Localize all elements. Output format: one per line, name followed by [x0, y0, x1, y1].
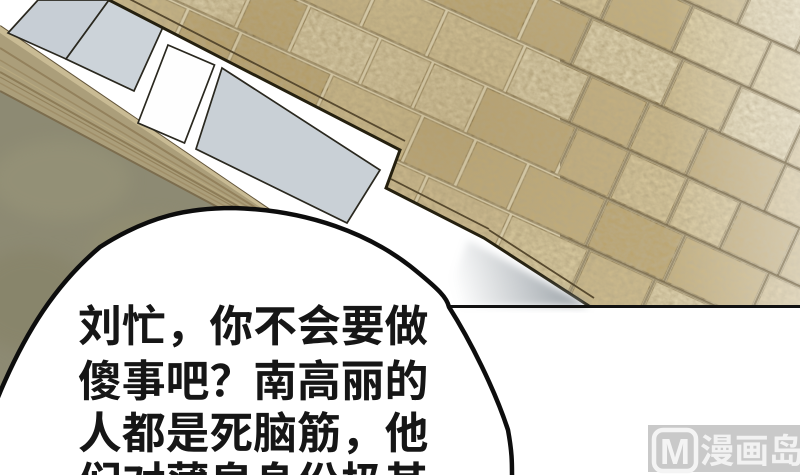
svg-text:M: M — [660, 431, 690, 472]
